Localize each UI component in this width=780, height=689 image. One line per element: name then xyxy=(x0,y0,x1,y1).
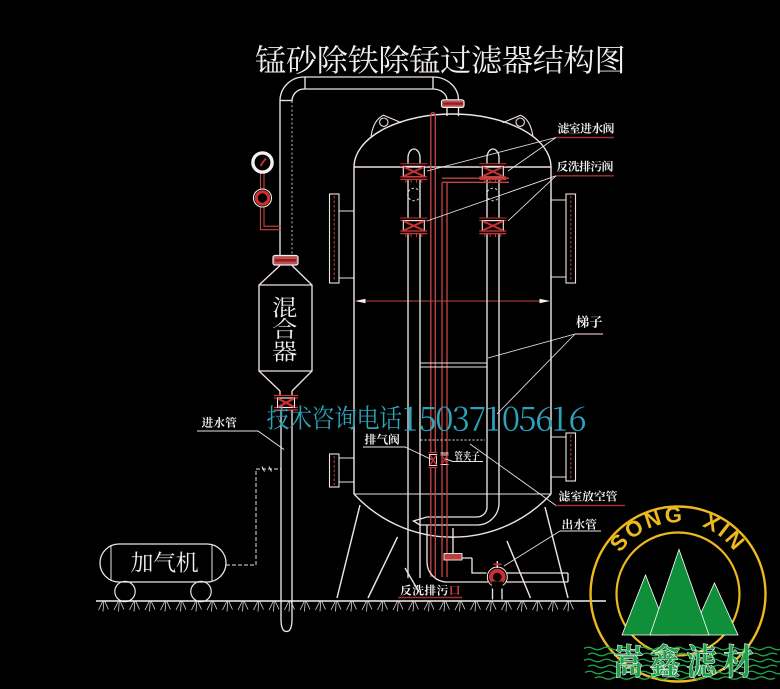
svg-text:SONG XIN: SONG XIN xyxy=(605,502,751,556)
